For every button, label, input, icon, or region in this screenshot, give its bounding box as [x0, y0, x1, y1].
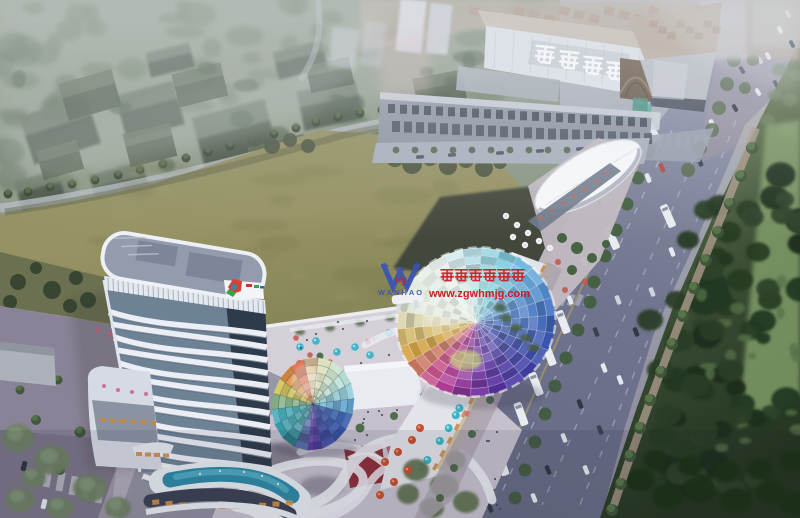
svg-text:ну: ну	[395, 275, 407, 286]
svg-text:www.zgwhmjg.com: www.zgwhmjg.com	[428, 288, 530, 300]
svg-text:WANHAO: WANHAO	[378, 288, 424, 297]
